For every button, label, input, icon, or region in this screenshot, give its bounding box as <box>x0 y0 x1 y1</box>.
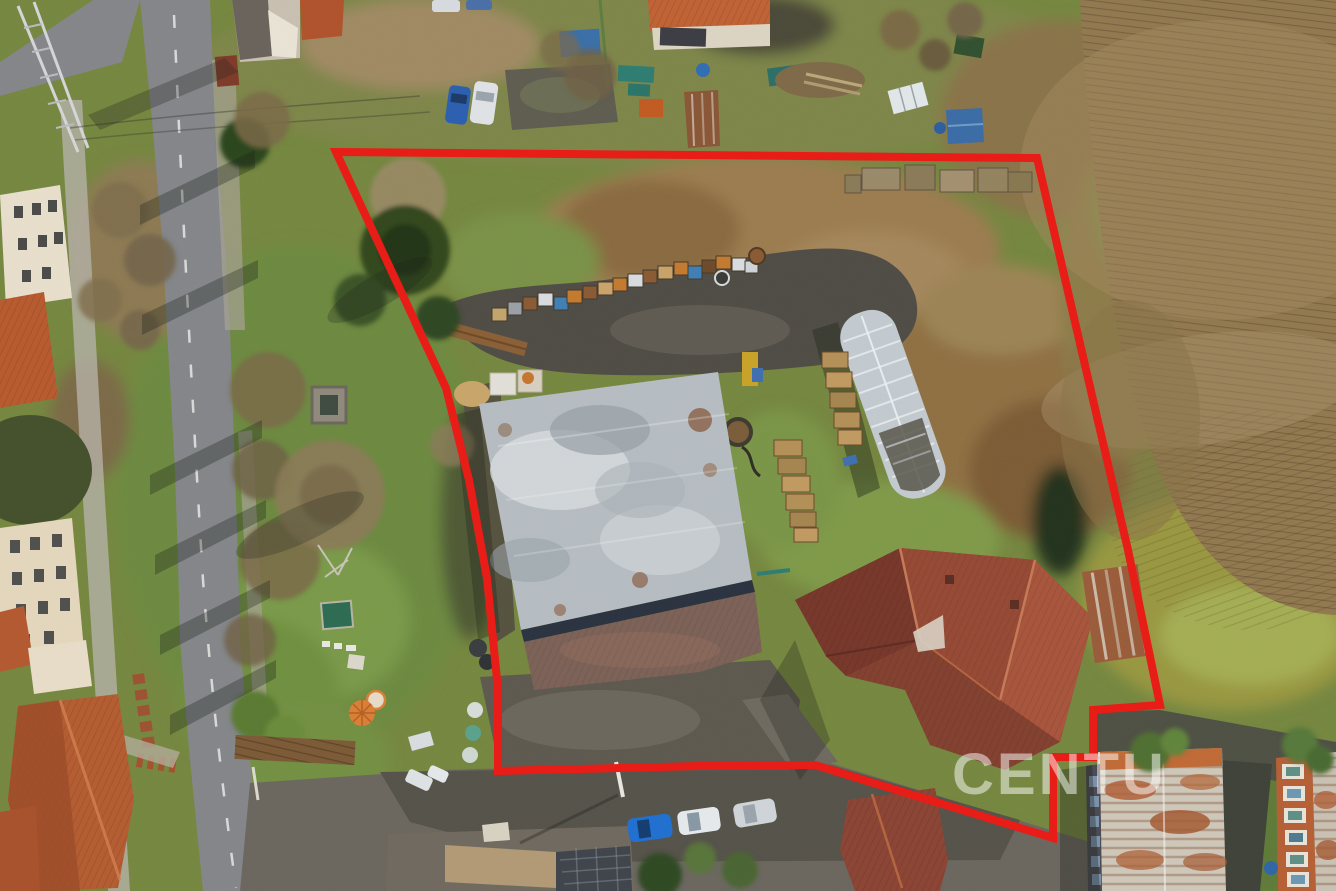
aerial-photo: CENTU <box>0 0 1336 891</box>
watermark-text: CENTU <box>952 742 1167 807</box>
